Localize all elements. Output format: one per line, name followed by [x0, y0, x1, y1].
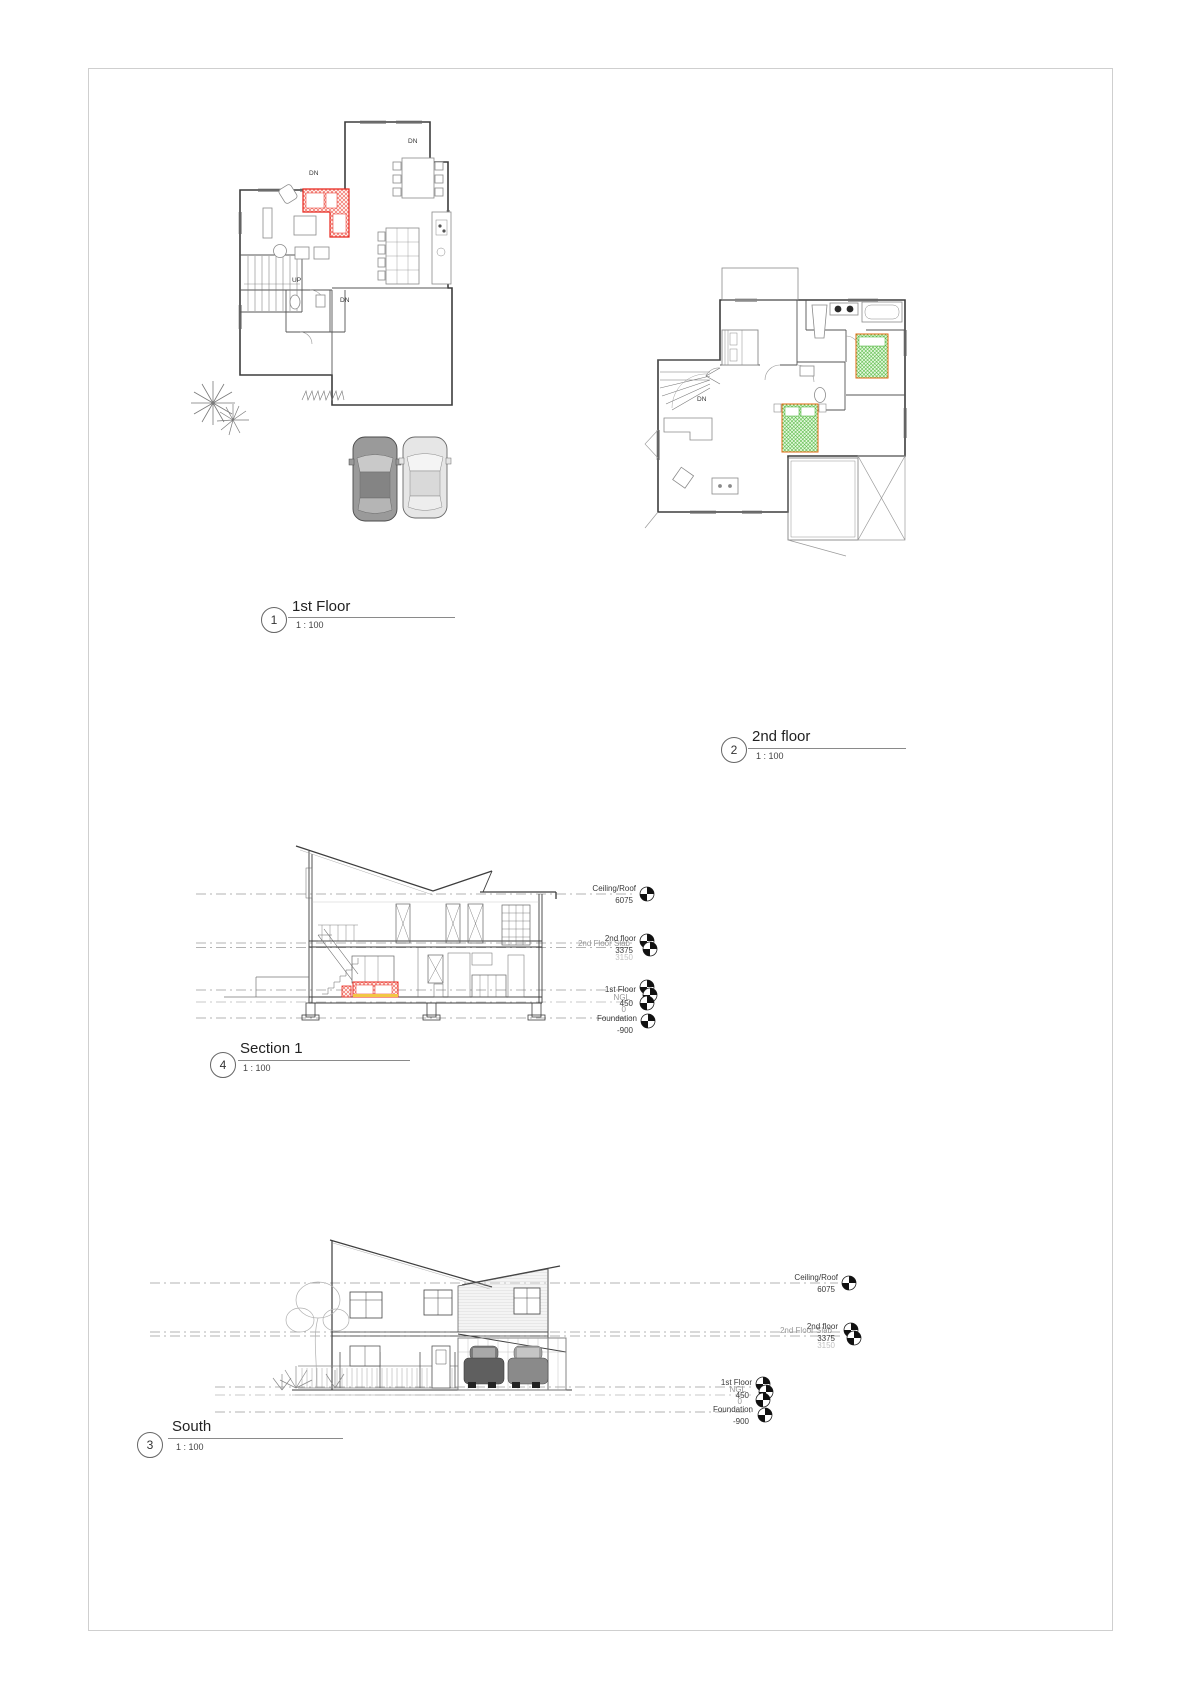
view-number-badge: 4 [210, 1052, 236, 1078]
plant [217, 404, 249, 435]
view-scale: 1 : 100 [756, 751, 784, 761]
view-scale: 1 : 100 [176, 1442, 204, 1452]
second-floor-plan-drawing: DN [645, 235, 915, 560]
view-scale: 1 : 100 [243, 1063, 271, 1073]
plan2-roof-planes [645, 430, 905, 556]
plan1-deck-hatch [302, 391, 344, 400]
car-top-view [349, 437, 401, 521]
car-top-view [399, 437, 451, 518]
section-porch [224, 977, 309, 997]
drawing-sheet: { "sheet": { "background": "#ffffff", "b… [0, 0, 1200, 1696]
deck-dn-label: DN [408, 138, 418, 145]
level-value: 6075 [817, 1285, 835, 1294]
bed-highlight [774, 404, 826, 452]
plan1-kitchen [378, 212, 451, 284]
section-level-lines [196, 894, 636, 1018]
view-title: Section 1 [240, 1040, 303, 1057]
south-upper-windows [350, 1290, 452, 1318]
bed-highlight [856, 334, 888, 378]
plant [191, 381, 235, 425]
level-marker-icon [756, 1276, 861, 1422]
title-underline [288, 617, 455, 618]
view-number-badge: 3 [137, 1432, 163, 1458]
section-level-annotations: Ceiling/Roof 6075 2nd Floor Slab 2nd flo… [578, 884, 657, 1035]
view-title: South [172, 1418, 211, 1435]
bed [722, 330, 758, 365]
section-upper-windows [306, 868, 530, 945]
plan2-balcony [788, 458, 858, 540]
section-foundation [302, 1003, 545, 1020]
entry-dn-label: DN [309, 170, 319, 177]
view-title: 2nd floor [752, 728, 810, 745]
south-elevation-drawing: Ceiling/Roof 6075 2nd Floor Slab 2nd flo… [145, 1230, 870, 1435]
view-number-badge: 2 [721, 737, 747, 763]
level-label: Foundation [597, 1014, 637, 1023]
view-scale: 1 : 100 [296, 620, 324, 630]
level-value: -900 [733, 1417, 750, 1426]
section-drawing: Ceiling/Roof 6075 2nd Floor Slab 2nd flo… [190, 775, 665, 1045]
plan1-dining-set [393, 158, 443, 198]
section-structure [296, 846, 556, 1003]
level-label: Ceiling/Roof [794, 1273, 838, 1282]
view-title: 1st Floor [292, 598, 350, 615]
first-floor-plan-drawing: UP [183, 108, 483, 533]
title-underline [238, 1060, 410, 1061]
plan2-furniture [664, 418, 738, 494]
plan2-stairs [660, 372, 710, 410]
south-level-annotations: Ceiling/Roof 6075 2nd Floor Slab 2nd flo… [713, 1273, 861, 1426]
title-underline [748, 748, 906, 749]
stairs-dn-label: DN [697, 396, 707, 403]
level-value-muted: 0 [622, 1005, 627, 1014]
level-label: 2nd floor [807, 1322, 838, 1331]
plant [273, 1366, 344, 1390]
title-underline [168, 1438, 343, 1439]
level-value-muted: 3150 [615, 953, 633, 962]
level-value-muted: 3150 [817, 1341, 835, 1350]
level-label: Ceiling/Roof [592, 884, 636, 893]
level-value: -900 [617, 1026, 634, 1035]
south-lower-openings [350, 1346, 450, 1388]
level-label: Foundation [713, 1405, 753, 1414]
south-brick-gable [458, 1269, 548, 1332]
view-number-badge: 1 [261, 607, 287, 633]
garage-dn-label: DN [340, 297, 350, 304]
level-label: 2nd floor [605, 934, 636, 943]
stairs-up-label: UP [292, 277, 301, 284]
car-front-view [508, 1346, 548, 1388]
sectional-sofa-highlight [342, 982, 398, 997]
level-value: 6075 [615, 896, 633, 905]
car-front-view [464, 1346, 504, 1388]
level-marker-icon [640, 887, 657, 1028]
